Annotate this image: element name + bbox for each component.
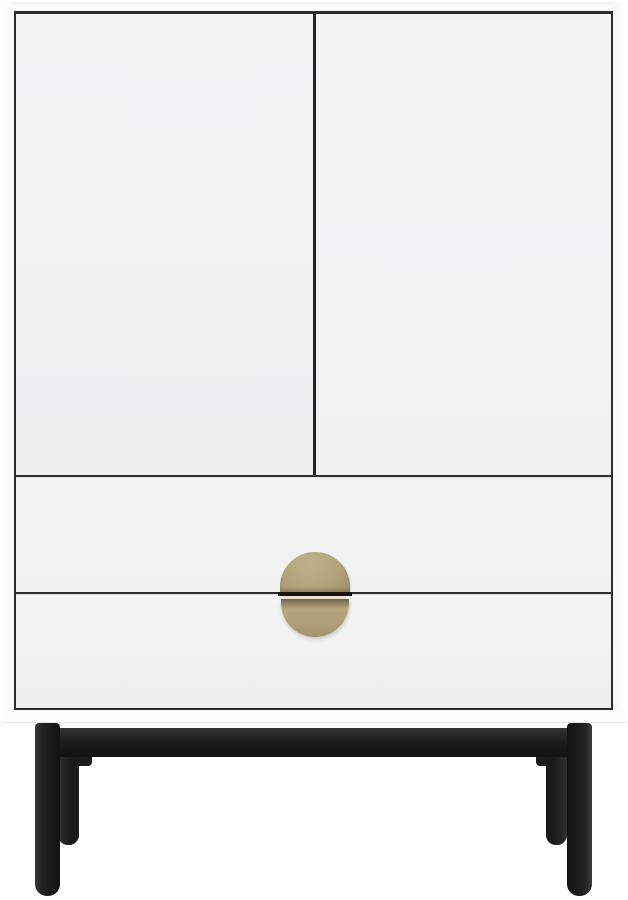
plinth bbox=[2, 710, 626, 723]
leg-front-left bbox=[35, 723, 60, 896]
right-door bbox=[316, 14, 611, 475]
gap-line-doors-bottom bbox=[14, 475, 613, 477]
furniture-product-image bbox=[0, 0, 628, 900]
cabinet-side-left bbox=[2, 2, 14, 722]
gap-line-door-divider bbox=[313, 13, 316, 477]
gap-line-right bbox=[611, 12, 613, 710]
left-door bbox=[16, 14, 313, 475]
gap-line-left bbox=[14, 12, 16, 710]
leg-front-right bbox=[567, 723, 592, 896]
leg-rail bbox=[46, 728, 582, 757]
cabinet-side-right bbox=[613, 2, 626, 722]
